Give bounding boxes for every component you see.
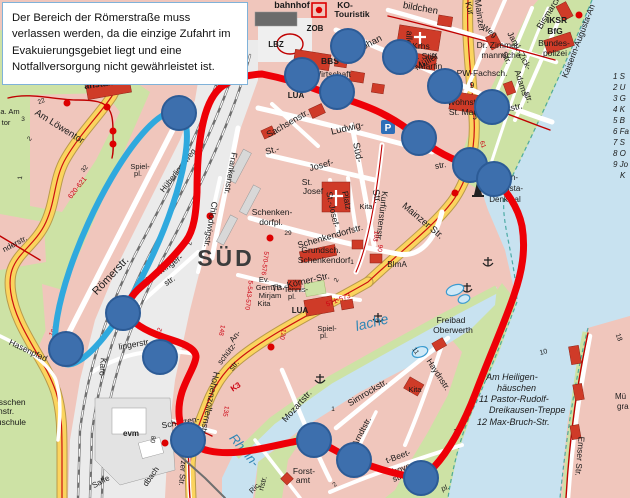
map-label: BfG <box>547 26 563 36</box>
map-label: 5 B <box>613 116 626 125</box>
evacuation-marker[interactable] <box>475 90 509 124</box>
evacuation-marker[interactable] <box>143 340 177 374</box>
map-label: Grundsch. <box>301 245 340 255</box>
evacuation-marker[interactable] <box>428 69 462 103</box>
map-label: 7 S <box>613 138 626 147</box>
map-label: LBZ <box>268 40 284 49</box>
map-label: ZOB <box>307 24 324 33</box>
map-label: 2 U <box>612 83 626 92</box>
evacuation-marker[interactable] <box>297 423 331 457</box>
evacuation-marker[interactable] <box>331 29 365 63</box>
note-line: Evakuierungsgebiet liegt und eine <box>12 43 238 59</box>
map-label: Mü <box>615 392 626 401</box>
map-label: 8 O <box>613 149 626 158</box>
note-line: Der Bereich der Römerstraße muss <box>12 10 238 26</box>
building <box>349 71 364 83</box>
map-label: K <box>620 171 626 180</box>
map-label: bahnhof <box>274 0 310 10</box>
map-label: 6 Fa <box>613 127 630 136</box>
note-line: Notfallversorgung nicht gewährleistet is… <box>12 59 238 75</box>
map-label: pl. <box>320 331 328 340</box>
evacuation-marker[interactable] <box>383 40 417 74</box>
map-label: amt <box>296 475 311 485</box>
map-label: nstr. <box>0 406 14 416</box>
map-label: Freibad <box>437 315 466 325</box>
map-label: 90 <box>376 244 384 252</box>
map-label: Josef <box>303 186 324 196</box>
evacuation-marker[interactable] <box>171 423 205 457</box>
evacuation-marker[interactable] <box>402 121 436 155</box>
map-label: Dreikausen-Treppe <box>489 405 565 415</box>
note-box: Der Bereich der Römerstraße muss verlass… <box>2 2 248 85</box>
map-label: Schenken- <box>252 207 293 217</box>
evacuation-marker[interactable] <box>404 461 438 495</box>
map-label: 1 <box>331 406 335 413</box>
map-label: polizei <box>543 48 567 58</box>
map-label: BImA <box>387 260 407 269</box>
map-label: häuschen <box>497 383 536 393</box>
map-label: 0 Am Heiligen- <box>479 372 538 382</box>
map-label: LUA <box>292 306 309 315</box>
evacuation-marker[interactable] <box>106 296 140 330</box>
map-label: 3 G <box>613 94 626 103</box>
map-label: 29 <box>284 230 292 237</box>
map-label: 12 Max-Bruch-Str. <box>477 417 550 427</box>
map-label: Touristik <box>334 9 370 19</box>
map-label: 9 Jo <box>613 160 629 169</box>
note-line: verlassen werden, da die einzige Zufahrt… <box>12 26 238 42</box>
evacuation-marker[interactable] <box>285 58 319 92</box>
map-label: gra <box>617 402 629 411</box>
evacuation-marker[interactable] <box>320 75 354 109</box>
map-label: 11 Pastor-Rudolf- <box>479 394 549 404</box>
map-label: Bundes- <box>538 38 570 48</box>
map-label: 3 <box>21 116 25 123</box>
building-hauptbahnhof <box>255 12 297 26</box>
map-label: Kita <box>258 299 272 308</box>
map-label: Schenkendorf <box>298 255 351 265</box>
map-label: Oberwerth <box>433 325 473 335</box>
map-label: SÜD <box>197 245 255 271</box>
map-label: 1 S <box>613 72 626 81</box>
map-label: str. <box>434 159 447 171</box>
evacuation-marker[interactable] <box>162 96 196 130</box>
building-kita <box>352 240 363 249</box>
map-label: tor <box>2 118 11 127</box>
map-label: Karo- <box>97 357 109 379</box>
map-label: dorfpl. <box>259 217 283 227</box>
map-label: 4 K <box>613 105 626 114</box>
map-label: 1 <box>350 259 354 266</box>
map-label: pl. <box>288 292 296 301</box>
map-label: Kita <box>360 202 374 211</box>
building <box>371 83 384 94</box>
parking-letter: P <box>385 123 392 134</box>
map-label: a. Am <box>0 107 19 116</box>
building <box>437 15 452 27</box>
building <box>370 254 382 263</box>
evacuation-marker[interactable] <box>49 332 83 366</box>
map-label: 9 <box>470 81 475 90</box>
evacuation-marker[interactable] <box>477 162 511 196</box>
map-label: auschule <box>0 417 26 427</box>
map-label: 103 <box>371 230 379 242</box>
map-label: pl. <box>134 169 142 178</box>
evacuation-marker[interactable] <box>337 443 371 477</box>
map-label: evm <box>123 429 139 438</box>
screenshot-stage: P <box>0 0 630 498</box>
map-label: PW-Fachsch. <box>457 68 508 78</box>
map-label: Kita <box>409 385 423 394</box>
